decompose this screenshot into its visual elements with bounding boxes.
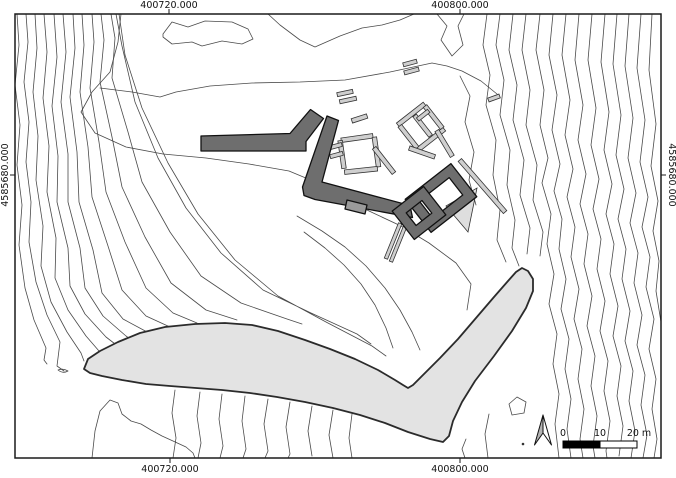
coord-label-left: 4585680.000 bbox=[0, 143, 11, 206]
map-canvas: 0 10 20 m 400720.000 400800.000 400720.0… bbox=[0, 0, 676, 478]
coord-label-top-left: 400720.000 bbox=[140, 0, 197, 11]
scale-label-0: 0 bbox=[560, 428, 566, 439]
scale-label-10: 10 bbox=[594, 428, 606, 439]
coord-label-top-right: 400800.000 bbox=[431, 0, 488, 11]
coord-label-right: 4585680.000 bbox=[666, 143, 676, 206]
coord-label-bottom-left: 400720.000 bbox=[141, 464, 198, 475]
scale-label-20m: 20 m bbox=[627, 428, 651, 439]
site-plan-figure: 0 10 20 m 400720.000 400800.000 400720.0… bbox=[0, 0, 676, 478]
coord-label-bottom-right: 400800.000 bbox=[431, 464, 488, 475]
